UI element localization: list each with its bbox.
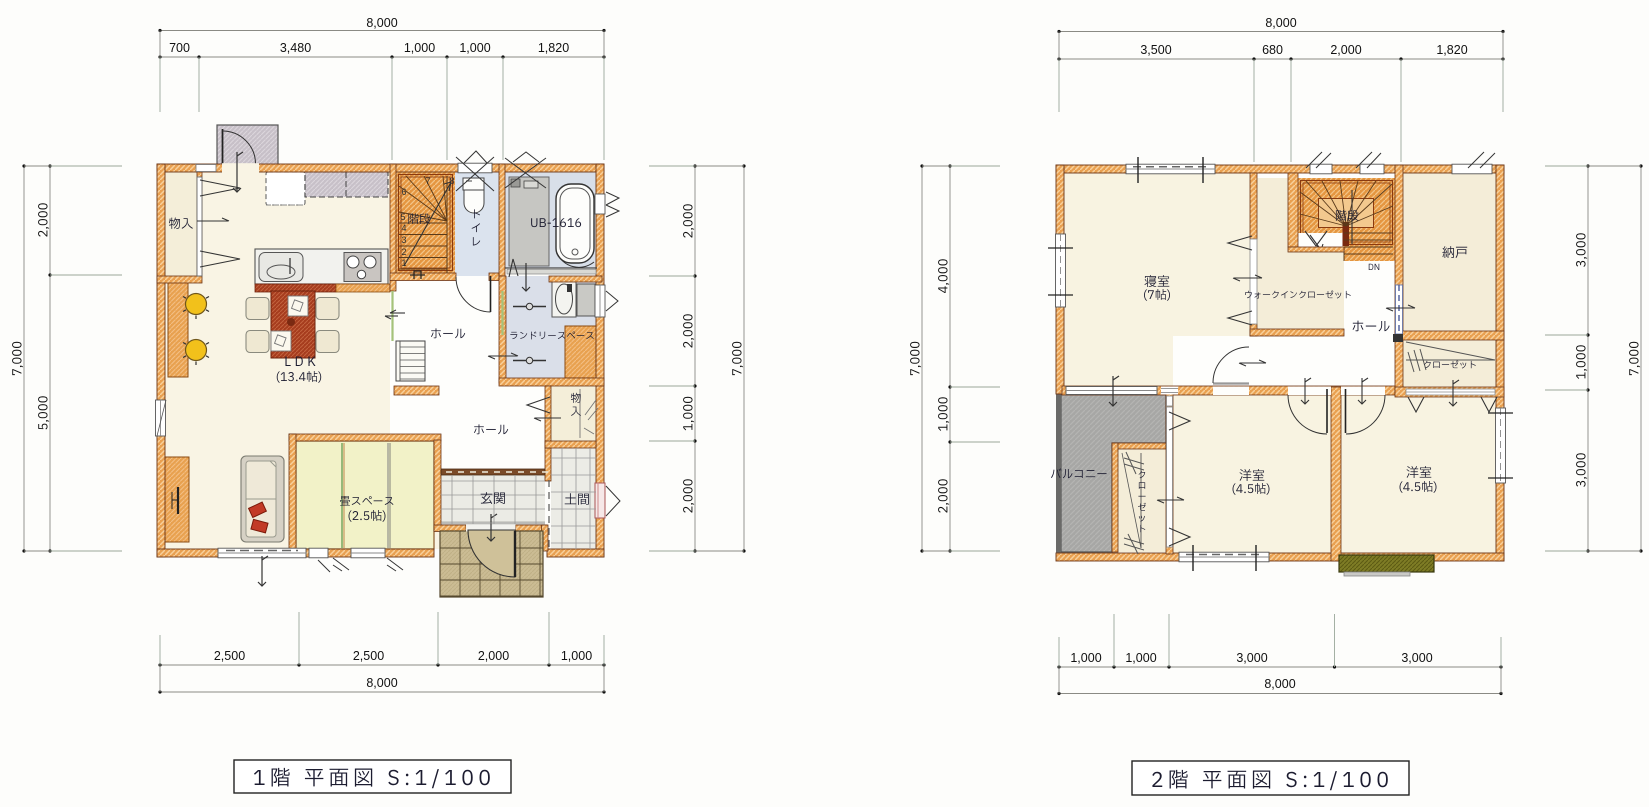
svg-text:5: 5: [400, 212, 405, 222]
svg-text:2,500: 2,500: [353, 649, 384, 663]
svg-text:6: 6: [401, 187, 406, 197]
svg-text:1,000: 1,000: [561, 649, 592, 663]
svg-text:2: 2: [401, 247, 406, 257]
svg-text:2,500: 2,500: [214, 649, 245, 663]
svg-text:1,820: 1,820: [538, 41, 569, 55]
svg-text:2,000: 2,000: [478, 649, 509, 663]
svg-text:8: 8: [449, 176, 454, 186]
svg-text:3,000: 3,000: [1236, 651, 1267, 665]
svg-text:3,000: 3,000: [1401, 651, 1432, 665]
svg-text:1,000: 1,000: [404, 41, 435, 55]
svg-text:3,480: 3,480: [280, 41, 311, 55]
svg-text:1,000: 1,000: [1070, 651, 1101, 665]
svg-text:1: 1: [401, 258, 406, 268]
svg-text:8,000: 8,000: [1265, 16, 1296, 30]
svg-text:8,000: 8,000: [366, 16, 397, 30]
svg-text:1,820: 1,820: [1436, 43, 1467, 57]
svg-text:3,500: 3,500: [1140, 43, 1171, 57]
svg-text:700: 700: [169, 41, 190, 55]
svg-text:3: 3: [401, 235, 406, 245]
svg-text:8,000: 8,000: [1264, 677, 1295, 691]
svg-text:7: 7: [425, 176, 430, 186]
svg-text:680: 680: [1262, 43, 1283, 57]
svg-text:2,000: 2,000: [1330, 43, 1361, 57]
svg-text:8,000: 8,000: [366, 676, 397, 690]
svg-text:1,000: 1,000: [1125, 651, 1156, 665]
svg-text:4: 4: [401, 223, 406, 233]
svg-text:1,000: 1,000: [459, 41, 490, 55]
